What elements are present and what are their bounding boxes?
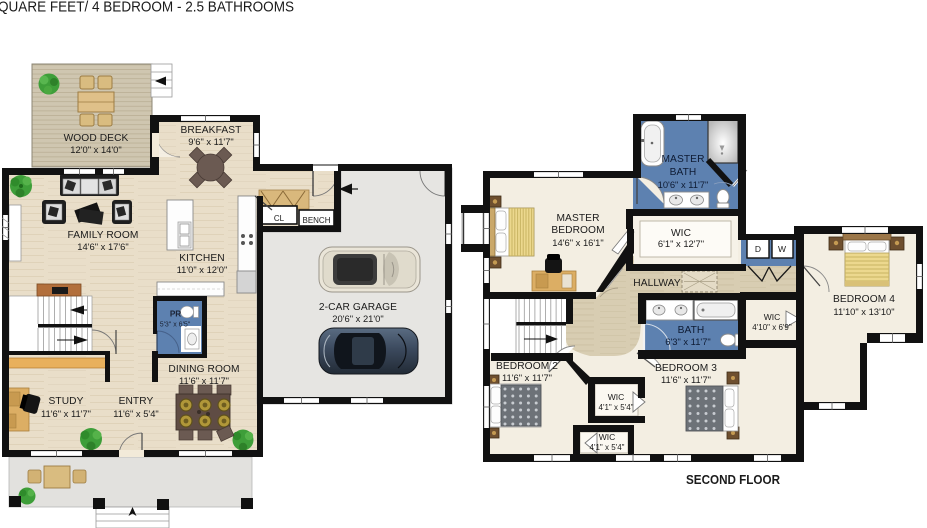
svg-text:STUDY: STUDY: [48, 396, 83, 407]
svg-text:BEDROOM 3: BEDROOM 3: [655, 363, 717, 374]
svg-text:11'6" x 5'4": 11'6" x 5'4": [113, 408, 159, 419]
svg-text:BEDROOM: BEDROOM: [551, 225, 604, 236]
svg-text:MASTER: MASTER: [661, 154, 704, 165]
svg-text:D: D: [755, 244, 761, 254]
svg-text:20'6" x 21'0": 20'6" x 21'0": [332, 313, 383, 324]
svg-text:4'1" x 5'4": 4'1" x 5'4": [599, 403, 634, 412]
svg-text:KITCHEN: KITCHEN: [179, 253, 224, 264]
svg-text:11'10" x 13'10": 11'10" x 13'10": [833, 306, 894, 317]
svg-text:BATH: BATH: [670, 167, 697, 178]
svg-text:5'3" x 6'5": 5'3" x 6'5": [160, 322, 191, 329]
svg-text:12'0" x 14'0": 12'0" x 14'0": [70, 144, 121, 155]
svg-text:11'6" x 11'7": 11'6" x 11'7": [502, 372, 552, 383]
svg-text:11'0" x 12'0": 11'0" x 12'0": [177, 264, 228, 275]
svg-text:4'10" x 6'9": 4'10" x 6'9": [752, 323, 792, 332]
svg-text:6'1" x 12'7": 6'1" x 12'7": [658, 238, 704, 249]
svg-text:4'1" x 5'4": 4'1" x 5'4": [590, 443, 625, 452]
svg-text:BEDROOM 4: BEDROOM 4: [833, 294, 895, 305]
svg-text:W: W: [778, 244, 786, 254]
svg-text:SECOND FLOOR: SECOND FLOOR: [686, 473, 780, 487]
svg-text:10'6" x 11'7": 10'6" x 11'7": [658, 179, 709, 190]
svg-text:11'6" x 11'7": 11'6" x 11'7": [661, 374, 711, 385]
svg-text:11'6" x 11'7": 11'6" x 11'7": [41, 408, 91, 419]
svg-text:14'6" x 17'6": 14'6" x 17'6": [77, 241, 128, 252]
svg-text:WOOD DECK: WOOD DECK: [64, 133, 129, 144]
svg-text:BEDROOM 2: BEDROOM 2: [496, 361, 558, 372]
svg-text:ENTRY: ENTRY: [119, 396, 154, 407]
svg-text:BATH: BATH: [678, 325, 705, 336]
svg-text:BREAKFAST: BREAKFAST: [181, 125, 242, 136]
svg-text:PR: PR: [170, 310, 181, 319]
svg-text:14'6" x 16'1": 14'6" x 16'1": [552, 237, 603, 248]
svg-text:QUARE FEET/ 4 BEDROOM - 2.5 BA: QUARE FEET/ 4 BEDROOM - 2.5 BATHROOMS: [0, 0, 294, 16]
svg-text:11'6" x 11'7": 11'6" x 11'7": [179, 375, 229, 386]
svg-text:WIC: WIC: [599, 432, 616, 442]
svg-text:6'3" x 11'7": 6'3" x 11'7": [665, 336, 711, 347]
svg-text:9'6" x 11'7": 9'6" x 11'7": [188, 136, 234, 147]
svg-text:BENCH: BENCH: [302, 216, 330, 225]
svg-text:FAMILY ROOM: FAMILY ROOM: [68, 230, 139, 241]
svg-text:CL: CL: [274, 214, 285, 223]
svg-text:DINING ROOM: DINING ROOM: [168, 364, 239, 375]
svg-text:WIC: WIC: [764, 312, 781, 322]
svg-text:MASTER: MASTER: [556, 213, 599, 224]
svg-text:HALLWAY: HALLWAY: [633, 278, 681, 289]
svg-text:WIC: WIC: [608, 392, 625, 402]
svg-text:2-CAR GARAGE: 2-CAR GARAGE: [319, 302, 397, 313]
